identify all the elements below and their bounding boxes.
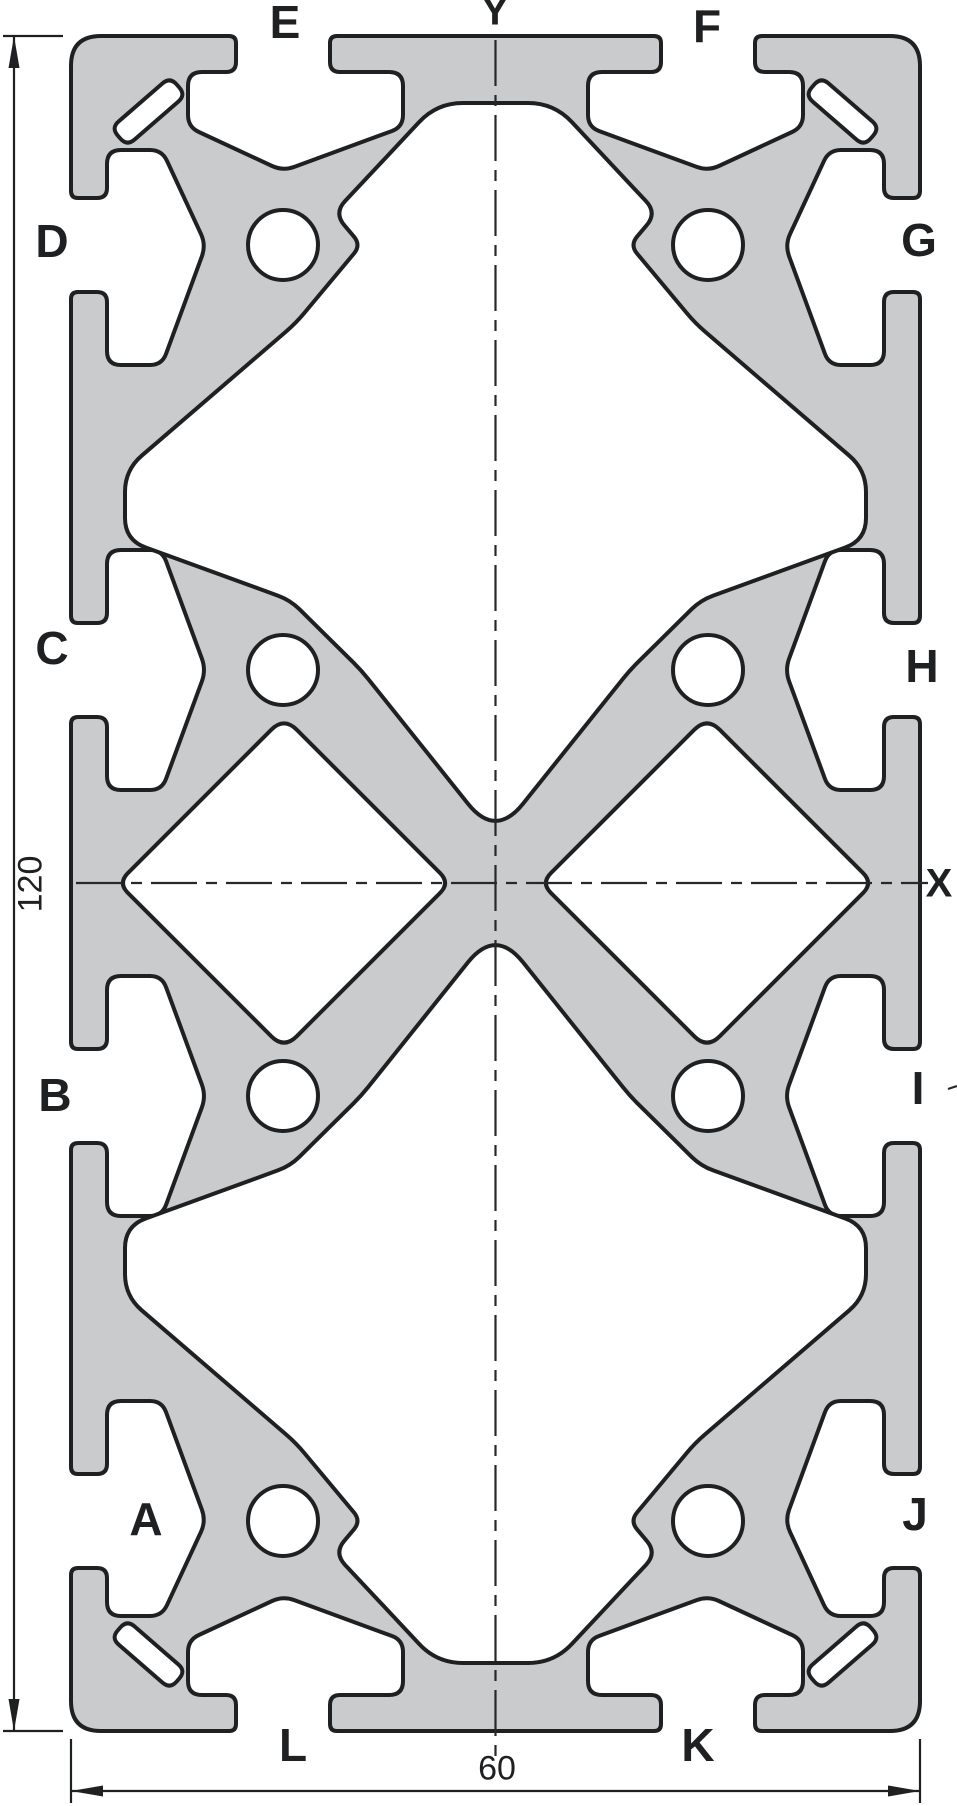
core-bore-hole — [248, 210, 318, 280]
core-bore-hole — [673, 210, 743, 280]
drawing-canvas: ABCDEFGHIJKLXY12060 — [0, 0, 957, 1806]
slot-label-K: K — [681, 1718, 714, 1772]
slot-label-B: B — [38, 1068, 71, 1122]
core-bore-hole — [248, 1061, 318, 1131]
dimension-value-width: 60 — [478, 1750, 516, 1789]
slot-label-A: A — [129, 1492, 162, 1546]
slot-label-J: J — [902, 1487, 928, 1541]
axis-label-X: X — [926, 862, 953, 907]
slot-label-E: E — [270, 0, 301, 49]
core-bore-hole — [248, 1486, 318, 1556]
slot-label-L: L — [279, 1718, 307, 1772]
slot-label-G: G — [901, 213, 937, 267]
slot-label-F: F — [693, 0, 721, 53]
slot-label-I: I — [912, 1061, 925, 1115]
slot-label-H: H — [905, 639, 938, 693]
core-bore-hole — [673, 635, 743, 705]
core-bore-hole — [248, 635, 318, 705]
slot-label-C: C — [35, 621, 68, 675]
core-bore-hole — [673, 1061, 743, 1131]
dimension-value-height: 120 — [12, 856, 51, 913]
axis-label-Y: Y — [482, 0, 509, 35]
slot-label-D: D — [35, 214, 68, 268]
core-bore-hole — [673, 1486, 743, 1556]
